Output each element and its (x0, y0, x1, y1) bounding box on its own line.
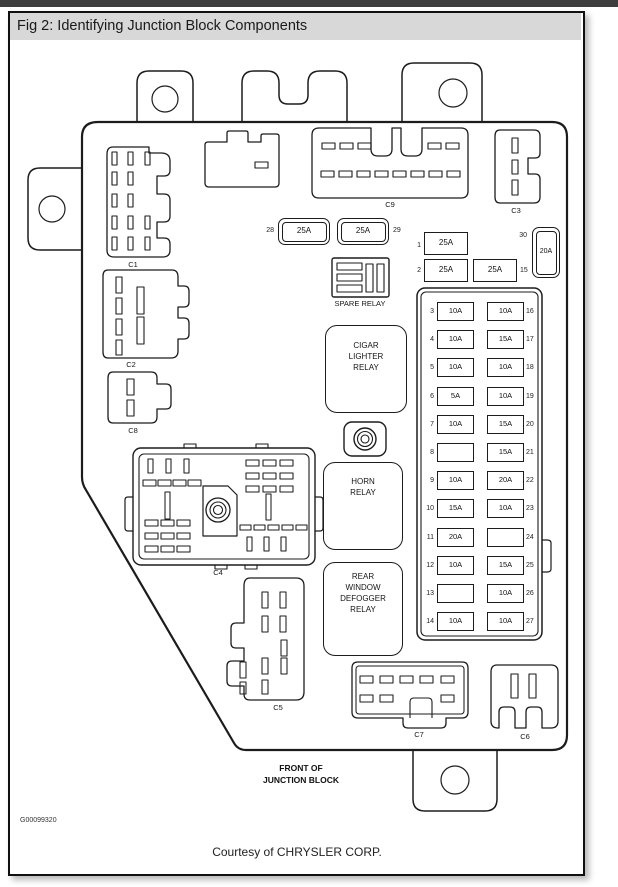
fuse-1-number: 1 (408, 236, 421, 255)
fuse-1: 25A (424, 232, 468, 255)
fuse-number-right: 23 (526, 499, 545, 518)
fuse-right: 15A (487, 415, 524, 434)
fuse-right: 15A (487, 330, 524, 349)
fuse-right: 10A (487, 499, 524, 518)
fuse-right: 10A (487, 584, 524, 603)
fuse-row: 310A10A16 (417, 302, 545, 321)
fuse-number-left: 7 (417, 415, 434, 434)
fuse-28-number: 28 (258, 224, 274, 238)
fuse-number-right: 16 (526, 302, 545, 321)
front-of-junction-block-label: FRONT OF JUNCTION BLOCK (246, 763, 356, 786)
fuse-left: 10A (437, 302, 474, 321)
fuse-row: 1015A10A23 (417, 499, 545, 518)
fuse-28-amps: 25A (282, 222, 327, 242)
mounting-tab-left-side (28, 168, 83, 250)
fuse-30: 20A (532, 227, 560, 278)
fuse-29-number: 29 (393, 224, 409, 238)
fuse-15: 25A (473, 259, 517, 282)
fuse-left: 10A (437, 556, 474, 575)
fuse-row: 1310A26 (417, 584, 545, 603)
fuse-number-left: 10 (417, 499, 434, 518)
fuse-right: 15A (487, 443, 524, 462)
connector-c7-label: C7 (406, 730, 432, 739)
fuse-2: 25A (424, 259, 468, 282)
fuse-number-right: 21 (526, 443, 545, 462)
fuse-number-right: 22 (526, 471, 545, 490)
fuse-left: 10A (437, 471, 474, 490)
fuse-row: 910A20A22 (417, 471, 545, 490)
fuse-panel: 310A10A16410A15A17510A10A1865A10A19710A1… (417, 288, 545, 640)
fuse-number-left: 8 (417, 443, 434, 462)
fuse-number-left: 5 (417, 358, 434, 377)
fuse-number-left: 4 (417, 330, 434, 349)
fuse-29-amps: 25A (341, 222, 386, 242)
fuse-number-left: 11 (417, 528, 434, 547)
fuse-left: 20A (437, 528, 474, 547)
fuse-2-number: 2 (408, 261, 421, 280)
connector-c3-label: C3 (503, 206, 529, 215)
fuse-number-right: 19 (526, 387, 545, 406)
fuse-number-right: 17 (526, 330, 545, 349)
fuse-row: 815A21 (417, 443, 545, 462)
connector-c9-label: C9 (377, 200, 403, 209)
fuse-30-amps: 20A (536, 231, 557, 275)
fuse-right: 10A (487, 387, 524, 406)
fuse-right: 15A (487, 556, 524, 575)
fuse-row: 710A15A20 (417, 415, 545, 434)
mounting-tab-bottom (413, 749, 497, 811)
connector-c8-label: C8 (120, 426, 146, 435)
fuse-29: 25A (337, 218, 389, 245)
cigar-lighter-relay: CIGAR LIGHTER RELAY (325, 325, 407, 413)
mounting-tab-top-left (137, 71, 193, 123)
fuse-left: 10A (437, 330, 474, 349)
horn-relay: HORN RELAY (323, 462, 403, 550)
connector-c2-label: C2 (118, 360, 144, 369)
fuse-left: 15A (437, 499, 474, 518)
connector-c4-label: C4 (205, 568, 231, 577)
fuse-left (437, 443, 474, 462)
fuse-right: 10A (487, 612, 524, 631)
page: Fig 2: Identifying Junction Block Compon… (0, 0, 618, 887)
mounting-tab-top-right (402, 63, 482, 123)
fuse-row: 510A10A18 (417, 358, 545, 377)
connector-c1-label: C1 (120, 260, 146, 269)
fuse-number-right: 25 (526, 556, 545, 575)
fuse-left: 10A (437, 415, 474, 434)
fuse-row: 1210A15A25 (417, 556, 545, 575)
fuse-row: 410A15A17 (417, 330, 545, 349)
connector-c5-label: C5 (265, 703, 291, 712)
fuse-number-left: 14 (417, 612, 434, 631)
fuse-right: 10A (487, 302, 524, 321)
fuse-row: 1410A10A27 (417, 612, 545, 631)
fuse-row: 1120A24 (417, 528, 545, 547)
fuse-number-right: 24 (526, 528, 545, 547)
fuse-number-right: 26 (526, 584, 545, 603)
fuse-left (437, 584, 474, 603)
connector-c6-label: C6 (512, 732, 538, 741)
mounting-tab-top-middle (242, 71, 347, 123)
fuse-number-right: 20 (526, 415, 545, 434)
fuse-right: 10A (487, 358, 524, 377)
fuse-number-left: 3 (417, 302, 434, 321)
fuse-right: 20A (487, 471, 524, 490)
fuse-28: 25A (278, 218, 330, 245)
fuse-number-left: 12 (417, 556, 434, 575)
rear-window-defogger-relay: REAR WINDOW DEFOGGER RELAY (323, 562, 403, 656)
courtesy-line: Courtesy of CHRYSLER CORP. (147, 845, 447, 859)
fuse-number-left: 9 (417, 471, 434, 490)
fuse-number-right: 27 (526, 612, 545, 631)
figure-code: G00099320 (20, 817, 57, 824)
fuse-left: 5A (437, 387, 474, 406)
fuse-number-left: 13 (417, 584, 434, 603)
fuse-left: 10A (437, 612, 474, 631)
fuse-row: 65A10A19 (417, 387, 545, 406)
fuse-number-left: 6 (417, 387, 434, 406)
fuse-number-right: 18 (526, 358, 545, 377)
fuse-15-number: 15 (520, 261, 536, 280)
fuse-right (487, 528, 524, 547)
spare-relay-label: SPARE RELAY (334, 299, 386, 308)
fuse-30-number: 30 (512, 230, 527, 242)
fuse-left: 10A (437, 358, 474, 377)
